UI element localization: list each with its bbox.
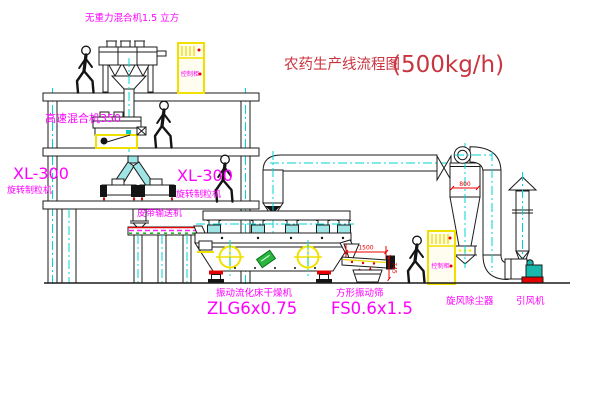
diagram-title: 农药生产线流程图 bbox=[284, 56, 400, 73]
diagram-title-capacity: (500kg/h) bbox=[392, 52, 504, 78]
third-floor-slab bbox=[43, 201, 259, 209]
discharge-cone bbox=[137, 65, 149, 76]
roof-slab bbox=[43, 93, 259, 101]
dryer-feed-inlet bbox=[199, 241, 212, 250]
cabinet-label: 控制柜 bbox=[431, 262, 450, 270]
fan-base bbox=[522, 277, 543, 283]
cabinet-label: 控制柜 bbox=[181, 70, 200, 78]
control-cabinet-upper: 控制柜 bbox=[178, 43, 204, 93]
label-high-speed-mixer: 高速混合机350 bbox=[45, 111, 121, 125]
control-cabinet-lower: 控制柜 bbox=[428, 231, 455, 284]
gravity-free-mixer bbox=[99, 41, 166, 92]
dim-cyclone-inlet: 800 bbox=[459, 181, 471, 188]
label-granulator-left-name: 旋转制粒机 bbox=[7, 184, 52, 196]
dim-sieve-length: 1500 bbox=[358, 245, 373, 252]
label-sieve-name: 方形振动筛 bbox=[336, 287, 384, 299]
dryer-bellows-ports bbox=[207, 220, 351, 233]
discharge-cone bbox=[109, 65, 121, 76]
granulator-left-machine bbox=[100, 179, 138, 201]
label-dryer-name: 振动流化床干燥机 bbox=[216, 287, 293, 299]
sieve-base bbox=[353, 270, 382, 282]
dim-sieve-height: 745 bbox=[391, 262, 398, 274]
label-sieve-model: FS0.6x1.5 bbox=[331, 299, 413, 318]
label-fan: 引风机 bbox=[516, 295, 545, 307]
person-figure-second-floor bbox=[155, 101, 172, 147]
label-granulator-right-model: XL-300 bbox=[177, 166, 233, 185]
diagram-svg: 控制柜 控制柜 农药生产线流程图 (500kg/h) 无重力混合机1.5 立方 … bbox=[0, 0, 600, 403]
fluid-bed-dryer bbox=[195, 211, 356, 283]
person-figure-roof bbox=[77, 46, 94, 92]
inlet-damper bbox=[437, 156, 444, 180]
flow-diagram-canvas: 控制柜 控制柜 农药生产线流程图 (500kg/h) 无重力混合机1.5 立方 … bbox=[0, 0, 600, 403]
label-granulator-left-model: XL-300 bbox=[13, 164, 69, 183]
mixer-motor bbox=[101, 138, 108, 145]
label-granulator-right-name: 旋转制粒机 bbox=[176, 188, 221, 200]
fan-inlet-box bbox=[505, 259, 527, 279]
second-floor-slab bbox=[43, 148, 259, 156]
induced-draft-fan bbox=[505, 259, 543, 283]
label-belt-conveyor: 皮带输送机 bbox=[137, 207, 182, 219]
label-dryer-model: ZLG6x0.75 bbox=[207, 299, 297, 318]
fan-motor bbox=[526, 265, 542, 277]
label-cyclone: 旋风除尘器 bbox=[446, 295, 494, 307]
person-figure-ground bbox=[408, 236, 425, 282]
dryer-foot bbox=[208, 271, 332, 284]
label-gravity-mixer: 无重力混合机1.5 立方 bbox=[85, 12, 179, 24]
